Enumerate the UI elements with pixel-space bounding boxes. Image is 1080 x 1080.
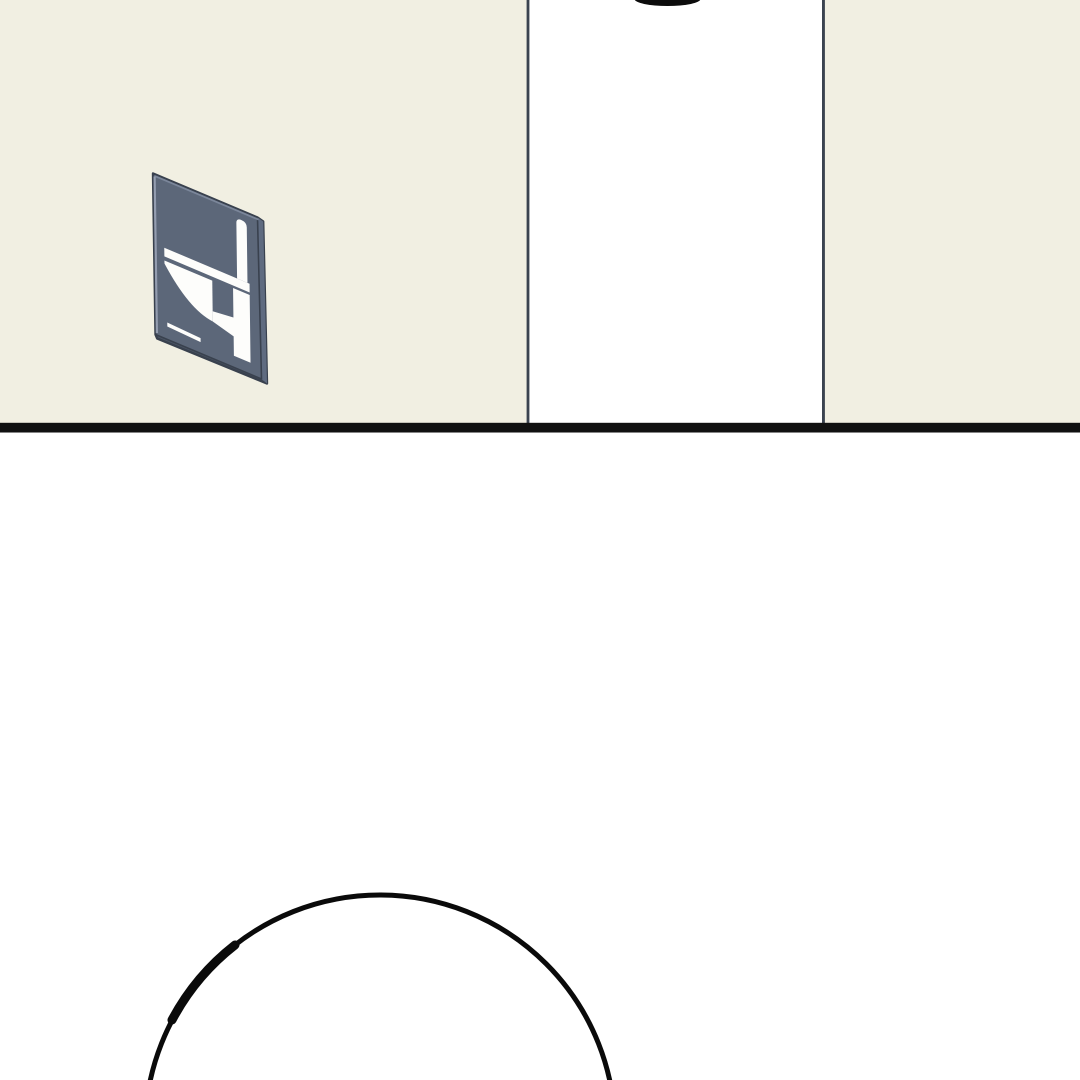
toilet-flush-tank-icon xyxy=(236,218,247,283)
comic-page xyxy=(0,0,1080,1080)
panel-divider xyxy=(0,423,1080,433)
panel-below xyxy=(0,433,1080,1080)
doorway-opening xyxy=(529,0,823,423)
panel-hallway xyxy=(0,0,1080,423)
door-frame-left-line xyxy=(527,0,530,423)
door-frame-right-line xyxy=(822,0,825,423)
